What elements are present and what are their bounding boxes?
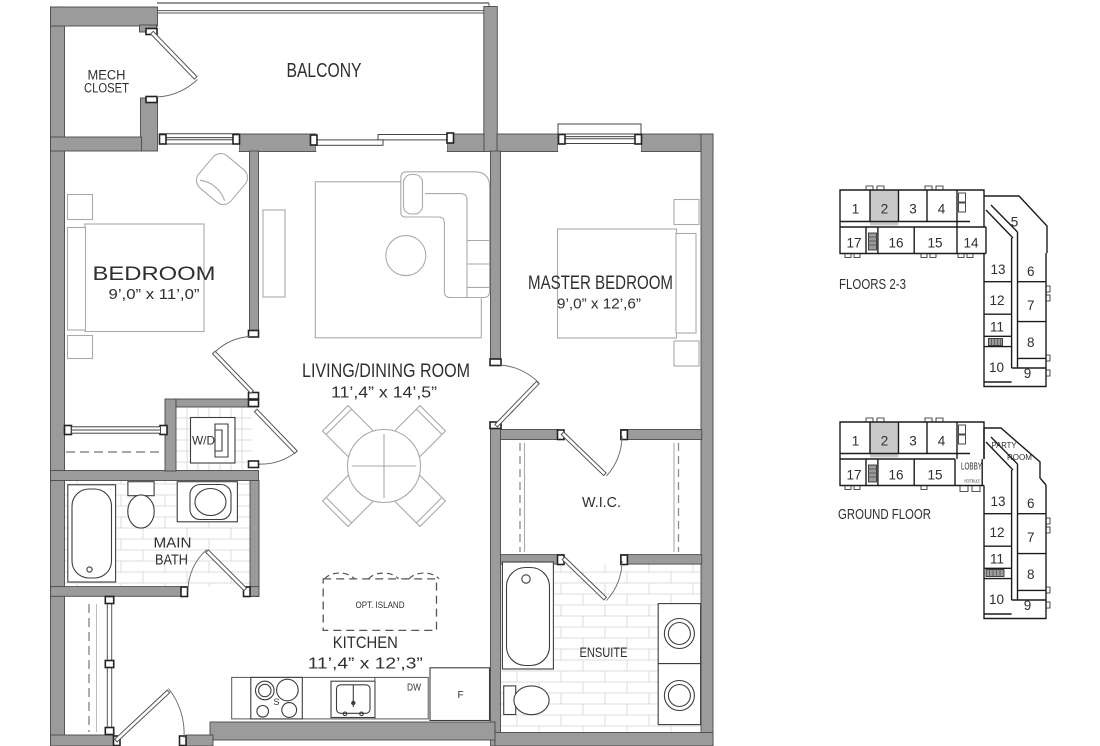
svg-text:VESTIBULE: VESTIBULE (964, 479, 980, 485)
svg-text:10: 10 (989, 592, 1004, 607)
svg-text:9: 9 (1024, 598, 1032, 613)
svg-text:13: 13 (990, 262, 1005, 277)
svg-text:3: 3 (909, 434, 917, 449)
svg-text:8: 8 (1027, 335, 1035, 350)
svg-text:16: 16 (888, 468, 903, 483)
svg-text:W.I.C.: W.I.C. (582, 495, 621, 511)
svg-text:15: 15 (927, 468, 942, 483)
svg-text:MASTER BEDROOM: MASTER BEDROOM (528, 273, 673, 294)
svg-text:13: 13 (990, 494, 1005, 509)
svg-text:BATH: BATH (155, 552, 188, 569)
svg-text:4: 4 (938, 434, 946, 449)
svg-text:2: 2 (881, 202, 889, 217)
svg-text:11: 11 (990, 552, 1004, 567)
svg-text:11: 11 (990, 320, 1004, 335)
svg-text:17: 17 (846, 236, 861, 251)
svg-text:PARTY: PARTY (992, 440, 1017, 450)
svg-text:11’,4” x 12’,3”: 11’,4” x 12’,3” (308, 656, 423, 673)
svg-text:10: 10 (989, 360, 1004, 375)
svg-text:W/D: W/D (192, 434, 215, 448)
svg-text:KITCHEN: KITCHEN (333, 633, 398, 652)
svg-text:9: 9 (1024, 366, 1032, 381)
svg-text:12: 12 (989, 293, 1004, 308)
svg-text:1: 1 (852, 434, 860, 449)
svg-text:6: 6 (1027, 496, 1035, 511)
svg-text:F: F (457, 690, 463, 701)
svg-text:9’,0” x 12’,6”: 9’,0” x 12’,6” (557, 296, 641, 313)
svg-text:S: S (273, 697, 279, 707)
svg-text:LOBBY: LOBBY (961, 461, 982, 473)
svg-text:17: 17 (846, 468, 861, 483)
svg-text:14: 14 (963, 236, 979, 251)
svg-text:11’,4” x 14’,5”: 11’,4” x 14’,5” (331, 385, 437, 402)
svg-text:6: 6 (1027, 264, 1035, 279)
svg-text:8: 8 (1027, 567, 1035, 582)
svg-text:2: 2 (881, 434, 889, 449)
svg-text:7: 7 (1027, 530, 1035, 545)
svg-text:LIVING/DINING ROOM: LIVING/DINING ROOM (302, 361, 470, 382)
svg-text:BALCONY: BALCONY (287, 60, 362, 82)
svg-text:5: 5 (1011, 215, 1019, 230)
svg-text:4: 4 (938, 202, 946, 217)
svg-text:7: 7 (1027, 298, 1035, 313)
svg-text:OPT. ISLAND: OPT. ISLAND (356, 600, 405, 611)
svg-text:ROOM: ROOM (1007, 452, 1032, 462)
svg-text:15: 15 (927, 236, 942, 251)
svg-text:CLOSET: CLOSET (84, 81, 129, 96)
svg-text:1: 1 (852, 202, 860, 217)
svg-text:GROUND FLOOR: GROUND FLOOR (838, 507, 931, 523)
svg-text:FLOORS 2-3: FLOORS 2-3 (839, 277, 906, 293)
svg-text:ENSUITE: ENSUITE (580, 644, 628, 660)
svg-text:DW: DW (407, 683, 421, 694)
svg-text:MAIN: MAIN (154, 535, 192, 552)
svg-text:12: 12 (989, 525, 1004, 540)
svg-text:16: 16 (888, 236, 903, 251)
svg-text:3: 3 (909, 202, 917, 217)
svg-text:9’,0” x 11’,0”: 9’,0” x 11’,0” (109, 286, 200, 303)
svg-text:BEDROOM: BEDROOM (93, 264, 216, 285)
